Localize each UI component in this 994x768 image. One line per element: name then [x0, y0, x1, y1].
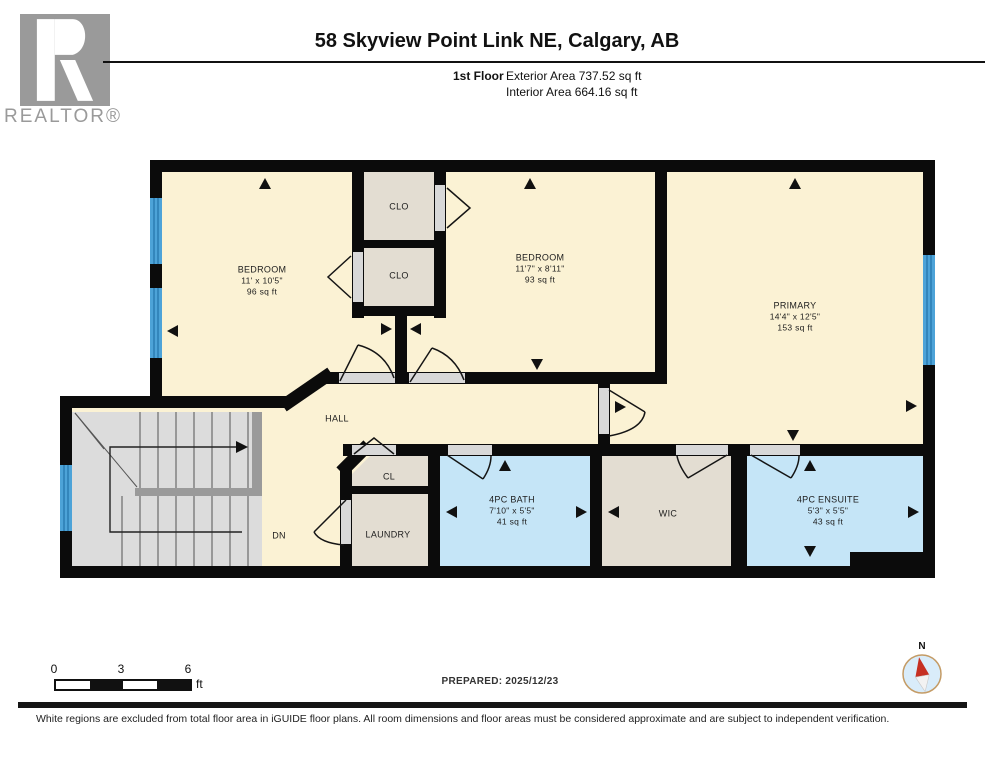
room-label-bedroom-1: BEDROOM 11' x 10'5" 96 sq ft: [238, 265, 287, 298]
footer-divider: [18, 702, 967, 708]
room-label-closet-bottom: CLO: [389, 271, 408, 282]
room-label-bath: 4PC BATH 7'10" x 5'5" 41 sq ft: [489, 495, 535, 528]
realtor-r-icon: [20, 14, 110, 106]
room-label-cl: CL: [383, 472, 395, 483]
room-label-dn: DN: [272, 531, 286, 542]
scale-tick-0: 0: [47, 662, 61, 676]
scale-unit: ft: [196, 677, 203, 691]
room-label-bedroom-2: BEDROOM 11'7" x 8'11" 93 sq ft: [515, 253, 564, 286]
scale-bar: [54, 679, 192, 691]
footer-disclaimer: White regions are excluded from total fl…: [36, 713, 974, 725]
floor-label: 1st Floor: [453, 69, 504, 83]
page-title: 58 Skyview Point Link NE, Calgary, AB: [0, 30, 994, 53]
header-divider: [103, 61, 985, 63]
realtor-logo-text: REALTOR®: [4, 106, 122, 128]
floor-plan-drawing: [0, 0, 994, 768]
room-label-primary: PRIMARY 14'4" x 12'5" 153 sq ft: [770, 301, 821, 334]
prepared-date: PREPARED: 2025/12/23: [350, 676, 650, 687]
exterior-area: Exterior Area 737.52 sq ft: [506, 69, 641, 83]
room-label-hall: HALL: [325, 414, 349, 425]
compass-icon: N: [898, 641, 946, 701]
compass-rose-icon: [900, 652, 944, 696]
floor-plan-page: REALTOR® 58 Skyview Point Link NE, Calga…: [0, 0, 994, 768]
room-label-wic: WIC: [659, 509, 677, 520]
compass-north-label: N: [898, 641, 946, 652]
scale-tick-6: 6: [181, 662, 195, 676]
room-label-closet-top: CLO: [389, 202, 408, 213]
interior-area: Interior Area 664.16 sq ft: [506, 85, 637, 99]
scale-tick-3: 3: [114, 662, 128, 676]
room-label-laundry: LAUNDRY: [366, 530, 411, 541]
room-label-ensuite: 4PC ENSUITE 5'3" x 5'5" 43 sq ft: [797, 495, 859, 528]
